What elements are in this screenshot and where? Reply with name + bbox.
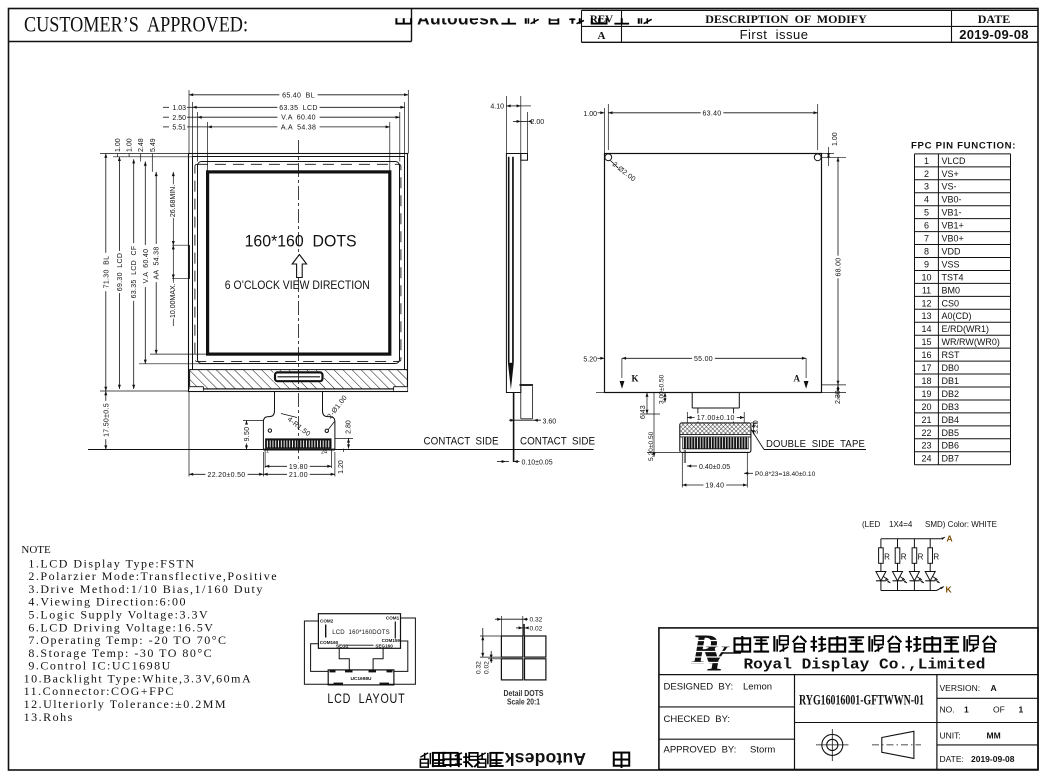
- svg-text:DESIGNED BY:: DESIGNED BY:: [664, 682, 734, 693]
- svg-text:WR/RW(WR0): WR/RW(WR0): [942, 337, 1000, 347]
- svg-text:2019-09-08: 2019-09-08: [959, 27, 1029, 42]
- svg-text:RYG16016001-GFTWWN-01: RYG16016001-GFTWWN-01: [799, 693, 924, 709]
- svg-text:NOTE: NOTE: [21, 544, 51, 556]
- svg-text:1: 1: [924, 156, 929, 166]
- svg-text:DATE:: DATE:: [940, 754, 964, 764]
- svg-text:13.Rohs: 13.Rohs: [24, 710, 74, 724]
- svg-text:CHECKED BY:: CHECKED BY:: [664, 714, 731, 725]
- svg-text:CONTACT SIDE: CONTACT SIDE: [520, 436, 595, 448]
- svg-text:DB1: DB1: [942, 376, 960, 386]
- svg-text:CS0: CS0: [942, 298, 960, 308]
- svg-text:0.40±0.05: 0.40±0.05: [699, 464, 730, 471]
- svg-text:SEG160: SEG160: [375, 643, 393, 648]
- svg-text:DATE: DATE: [978, 12, 1010, 26]
- svg-text:Y: Y: [704, 638, 731, 680]
- svg-text:63.35 LCD CF: 63.35 LCD CF: [131, 246, 138, 299]
- svg-text:8: 8: [924, 246, 929, 256]
- svg-text:P0.8*23=18.40±0.10: P0.8*23=18.40±0.10: [755, 471, 816, 478]
- svg-text:3.60: 3.60: [543, 418, 557, 425]
- svg-text:1.20: 1.20: [338, 460, 345, 474]
- svg-text:LCD 160*160DOTS: LCD 160*160DOTS: [332, 630, 390, 636]
- svg-text:0.02: 0.02: [530, 625, 543, 632]
- svg-text:18: 18: [921, 376, 931, 386]
- svg-text:11: 11: [922, 285, 931, 295]
- svg-text:17: 17: [921, 363, 931, 373]
- svg-text:V.A 60.40: V.A 60.40: [143, 249, 150, 284]
- svg-text:0.32: 0.32: [475, 661, 482, 674]
- svg-text:NO.: NO.: [940, 704, 955, 714]
- svg-text:CONTACT SIDE: CONTACT SIDE: [424, 436, 499, 448]
- svg-text:5.49: 5.49: [150, 138, 157, 152]
- svg-text:Detail DOTS: Detail DOTS: [504, 689, 544, 698]
- svg-text:K: K: [632, 374, 639, 384]
- svg-text:21.00: 21.00: [289, 472, 308, 479]
- svg-text:16: 16: [921, 350, 931, 360]
- svg-text:6 O’CLOCK VIEW DIRECTION: 6 O’CLOCK VIEW DIRECTION: [225, 280, 370, 292]
- svg-text:DOUBLE SIDE TAPE: DOUBLE SIDE TAPE: [766, 438, 865, 450]
- svg-text:4.10: 4.10: [490, 104, 504, 111]
- svg-text:V.A 60.40: V.A 60.40: [281, 115, 316, 122]
- svg-text:A: A: [598, 30, 606, 42]
- svg-text:13: 13: [921, 311, 931, 321]
- svg-text:63.40: 63.40: [702, 110, 721, 117]
- svg-text:65.40 BL: 65.40 BL: [282, 92, 315, 99]
- svg-text:Storm: Storm: [750, 745, 775, 756]
- svg-text:19: 19: [921, 389, 931, 399]
- svg-text:1X4=4: 1X4=4: [889, 520, 913, 529]
- svg-text:19.40: 19.40: [705, 482, 724, 489]
- svg-text:63.35 LCD: 63.35 LCD: [279, 105, 317, 112]
- svg-text:COM1: COM1: [386, 616, 400, 621]
- svg-text:A: A: [991, 683, 997, 693]
- svg-text:TST4: TST4: [942, 272, 964, 282]
- svg-text:1.00: 1.00: [832, 132, 839, 146]
- svg-text:VB0+: VB0+: [942, 234, 964, 244]
- svg-text:Autodesk: Autodesk: [505, 749, 586, 769]
- svg-text:5.51: 5.51: [172, 125, 186, 132]
- svg-text:3.20: 3.20: [753, 420, 760, 434]
- svg-text:A: A: [794, 374, 801, 384]
- svg-text:10.00MAX.: 10.00MAX.: [170, 283, 177, 318]
- svg-text:E/RD(WR1): E/RD(WR1): [942, 324, 990, 334]
- svg-text:Lemon: Lemon: [743, 682, 772, 693]
- svg-text:68.00: 68.00: [835, 257, 842, 276]
- svg-text:2.80: 2.80: [345, 420, 352, 434]
- svg-text:Royal Display Co.,Limited: Royal Display Co.,Limited: [744, 657, 986, 673]
- svg-text:K: K: [946, 585, 953, 595]
- svg-text:BM0: BM0: [942, 285, 961, 295]
- svg-text:SMD) Color: WHITE: SMD) Color: WHITE: [925, 520, 997, 529]
- svg-text:VERSION:: VERSION:: [940, 683, 981, 693]
- svg-text:23: 23: [921, 441, 931, 451]
- svg-text:1.00: 1.00: [583, 111, 597, 118]
- svg-text:VB1+: VB1+: [942, 221, 964, 231]
- svg-text:1.00: 1.00: [127, 138, 134, 152]
- svg-text:R: R: [901, 553, 907, 562]
- svg-text:2.00: 2.00: [531, 119, 545, 126]
- svg-text:3: 3: [924, 182, 929, 192]
- svg-text:55.00: 55.00: [694, 356, 713, 363]
- svg-text:VB0-: VB0-: [942, 195, 962, 205]
- svg-text:24: 24: [921, 454, 931, 464]
- svg-text:VSS: VSS: [942, 259, 960, 269]
- svg-text:CUSTOMER’S APPROVED:: CUSTOMER’S APPROVED:: [24, 12, 248, 37]
- svg-text:0.10±0.05: 0.10±0.05: [522, 459, 553, 466]
- svg-text:5.20: 5.20: [583, 356, 597, 363]
- svg-text:VS+: VS+: [942, 169, 959, 179]
- svg-text:1.00: 1.00: [115, 138, 122, 152]
- svg-text:Autodesk: Autodesk: [417, 8, 499, 28]
- svg-text:RST: RST: [942, 350, 961, 360]
- svg-text:FPC PIN FUNCTION:: FPC PIN FUNCTION:: [911, 141, 1016, 152]
- svg-text:3.00±0.50: 3.00±0.50: [658, 374, 665, 404]
- svg-text:2.48: 2.48: [138, 138, 145, 152]
- svg-text:0.32: 0.32: [530, 617, 543, 624]
- svg-text:DB5: DB5: [942, 428, 960, 438]
- svg-text:24: 24: [321, 450, 327, 456]
- svg-text:AA 54.38: AA 54.38: [154, 246, 161, 279]
- svg-text:LCD LAYOUT: LCD LAYOUT: [327, 690, 405, 706]
- svg-text:DB7: DB7: [942, 454, 960, 464]
- svg-text:2.50: 2.50: [172, 115, 186, 122]
- svg-text:9.50: 9.50: [244, 427, 251, 442]
- svg-text:A0(CD): A0(CD): [942, 311, 972, 321]
- svg-text:26.68MIN.: 26.68MIN.: [170, 185, 177, 217]
- svg-text:DB4: DB4: [942, 415, 960, 425]
- svg-text:5.20±0.50: 5.20±0.50: [648, 431, 655, 461]
- svg-text:DB6: DB6: [942, 441, 960, 451]
- svg-text:R: R: [933, 553, 939, 562]
- svg-text:DB3: DB3: [942, 402, 960, 412]
- svg-text:14: 14: [921, 324, 931, 334]
- svg-text:VS-: VS-: [942, 182, 957, 192]
- svg-text:UNIT:: UNIT:: [940, 730, 961, 740]
- svg-text:17.50±0.5: 17.50±0.5: [103, 403, 110, 437]
- svg-text:R: R: [918, 553, 924, 562]
- svg-text:UC1698U: UC1698U: [350, 676, 372, 682]
- svg-text:First issue: First issue: [740, 27, 809, 42]
- svg-text:VDD: VDD: [942, 246, 962, 256]
- svg-text:DB0: DB0: [942, 363, 960, 373]
- svg-text:6.43: 6.43: [640, 405, 647, 419]
- svg-text:0.02: 0.02: [484, 661, 491, 674]
- svg-text:2019-09-08: 2019-09-08: [971, 754, 1015, 764]
- svg-text:15: 15: [921, 337, 931, 347]
- svg-text:VB1-: VB1-: [942, 208, 962, 218]
- svg-text:160*160 DOTS: 160*160 DOTS: [245, 233, 357, 251]
- svg-text:12: 12: [921, 298, 931, 308]
- svg-text:1: 1: [1019, 704, 1024, 714]
- svg-text:7: 7: [924, 234, 929, 244]
- svg-text:A: A: [947, 534, 953, 544]
- svg-text:21: 21: [921, 415, 931, 425]
- svg-text:SEG1: SEG1: [336, 643, 349, 648]
- svg-text:20: 20: [921, 402, 931, 412]
- svg-text:71.30 BL: 71.30 BL: [103, 256, 110, 289]
- svg-text:4: 4: [924, 195, 929, 205]
- svg-text:A.A 54.38: A.A 54.38: [281, 124, 316, 131]
- svg-text:6: 6: [924, 221, 929, 231]
- svg-text:69.30 LCD: 69.30 LCD: [117, 253, 124, 291]
- svg-text:(LED: (LED: [862, 520, 880, 529]
- svg-text:19.80: 19.80: [289, 464, 308, 471]
- svg-text:22: 22: [921, 428, 931, 438]
- svg-text:2-Ø1.00: 2-Ø1.00: [327, 394, 349, 420]
- svg-text:22.20±0.50: 22.20±0.50: [208, 472, 246, 479]
- svg-text:VLCD: VLCD: [942, 156, 967, 166]
- svg-text:10: 10: [921, 272, 931, 282]
- svg-text:COM2: COM2: [320, 619, 334, 624]
- svg-text:17.00±0.10: 17.00±0.10: [697, 415, 735, 422]
- svg-text:OF: OF: [993, 704, 1005, 714]
- svg-text:DESCRIPTION OF MODIFY: DESCRIPTION OF MODIFY: [705, 12, 867, 26]
- svg-text:5: 5: [924, 208, 929, 218]
- svg-text:1.03: 1.03: [172, 105, 186, 112]
- svg-text:MM: MM: [987, 730, 1001, 740]
- svg-text:R: R: [884, 553, 890, 562]
- svg-text:APPROVED BY:: APPROVED BY:: [664, 745, 737, 756]
- svg-text:COM159: COM159: [382, 638, 401, 643]
- svg-text:Scale 20:1: Scale 20:1: [507, 698, 540, 707]
- svg-text:1: 1: [964, 704, 969, 714]
- svg-text:9: 9: [924, 259, 929, 269]
- svg-text:2: 2: [924, 169, 929, 179]
- svg-text:DB2: DB2: [942, 389, 960, 399]
